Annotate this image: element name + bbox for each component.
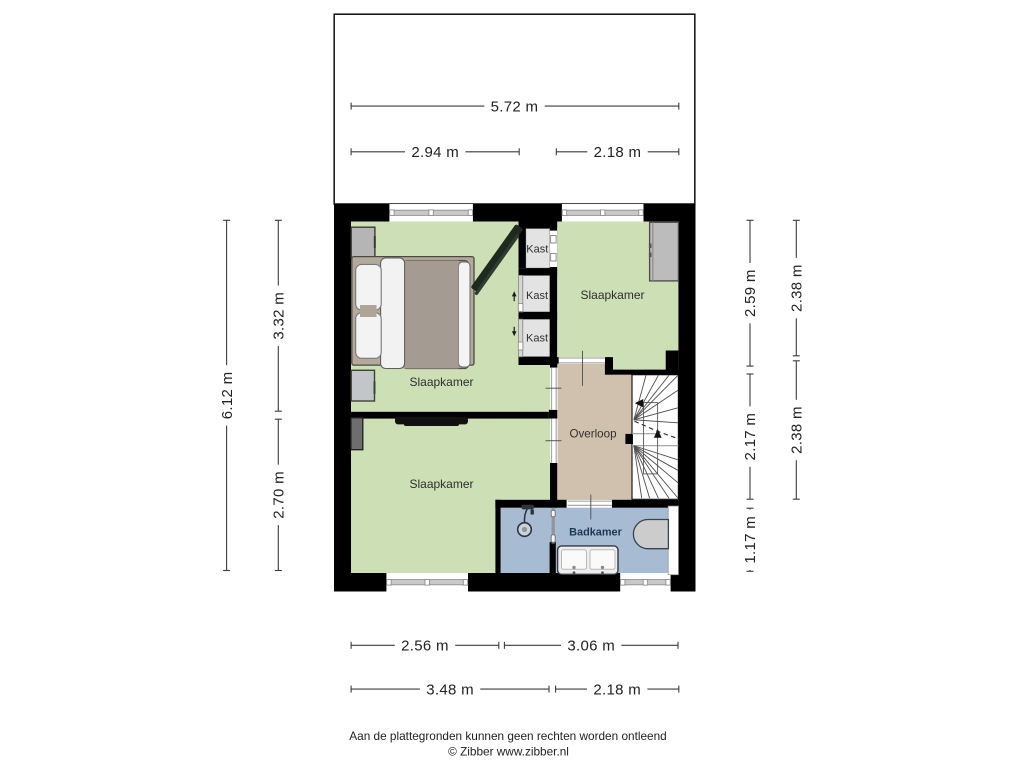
svg-text:Kast: Kast <box>526 290 548 302</box>
svg-text:Slaapkamer: Slaapkamer <box>409 477 473 491</box>
svg-text:2.38 m: 2.38 m <box>789 264 806 312</box>
svg-text:2.18 m: 2.18 m <box>594 144 642 161</box>
svg-text:1.17 m: 1.17 m <box>742 516 759 564</box>
svg-text:2.94 m: 2.94 m <box>411 144 459 161</box>
svg-text:3.06 m: 3.06 m <box>567 638 615 655</box>
svg-text:Slaapkamer: Slaapkamer <box>409 375 473 389</box>
svg-text:2.17 m: 2.17 m <box>742 413 759 461</box>
svg-text:Overloop: Overloop <box>569 428 616 441</box>
svg-text:2.56 m: 2.56 m <box>401 638 449 655</box>
svg-text:2.38 m: 2.38 m <box>789 406 806 454</box>
svg-text:Kast: Kast <box>526 333 548 345</box>
svg-text:Kast: Kast <box>526 244 548 256</box>
svg-text:2.59 m: 2.59 m <box>742 269 759 317</box>
svg-text:© Zibber www.zibber.nl: © Zibber www.zibber.nl <box>448 745 569 759</box>
svg-text:6.12 m: 6.12 m <box>219 372 236 420</box>
svg-text:3.32 m: 3.32 m <box>271 292 288 340</box>
svg-text:2.18 m: 2.18 m <box>593 681 641 698</box>
svg-text:3.48 m: 3.48 m <box>426 681 474 698</box>
svg-text:5.72 m: 5.72 m <box>491 98 539 115</box>
svg-text:Slaapkamer: Slaapkamer <box>580 288 644 302</box>
svg-text:Badkamer: Badkamer <box>569 527 622 539</box>
svg-text:Aan de plattegronden kunnen ge: Aan de plattegronden kunnen geen rechten… <box>349 729 666 743</box>
svg-text:2.70 m: 2.70 m <box>271 471 288 519</box>
